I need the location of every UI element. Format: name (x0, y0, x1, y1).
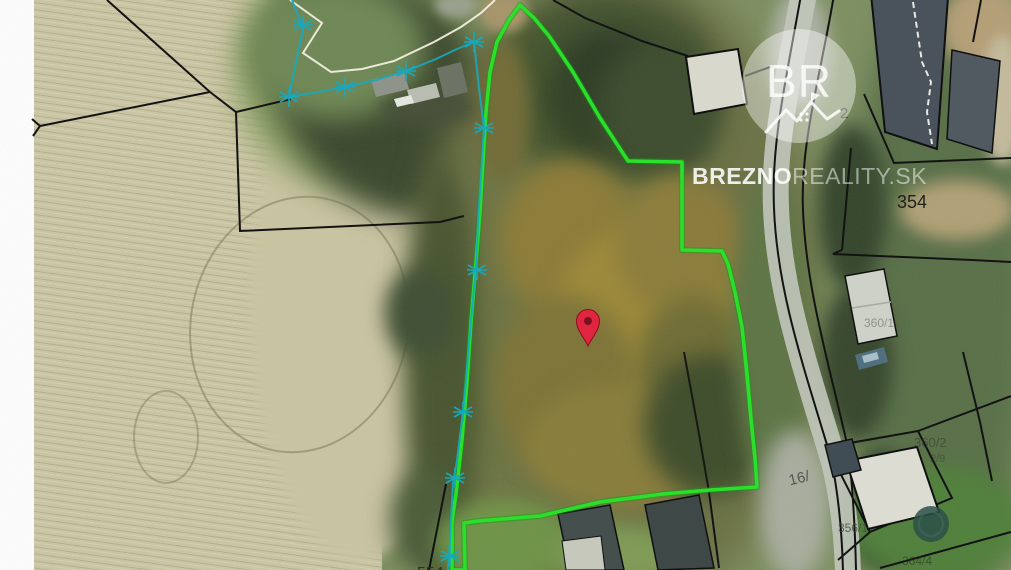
watermark-site-light: REALITY.SK (792, 163, 927, 189)
parcel-label-554: 554 (417, 565, 444, 570)
aerial-map-canvas[interactable]: 354 2 16/ 356/1 360/1 360/2 2/9 364/4 55… (0, 0, 1011, 570)
parcel-label-360-2: 360/2 (914, 435, 947, 450)
building-pale-bottom (562, 536, 605, 570)
building-white-roof-top (686, 49, 747, 114)
parcel-label-2-9: 2/9 (930, 453, 945, 465)
parcel-label-354: 354 (897, 192, 927, 212)
pin-center-dot (584, 317, 592, 325)
building-dark-roof-2 (947, 50, 1000, 153)
parcel-label-364-4: 364/4 (902, 554, 932, 568)
watermark-site-bold: BREZNO (692, 163, 792, 189)
parcel-label-356-1: 356/1 (838, 521, 868, 535)
parcel-label-360-1: 360/1 (864, 316, 894, 330)
watermark-logo-text: BR (766, 55, 832, 107)
map-overlay: 354 2 16/ 356/1 360/1 360/2 2/9 364/4 55… (0, 0, 1011, 570)
watermark-site-text: BREZNOREALITY.SK (692, 163, 927, 189)
